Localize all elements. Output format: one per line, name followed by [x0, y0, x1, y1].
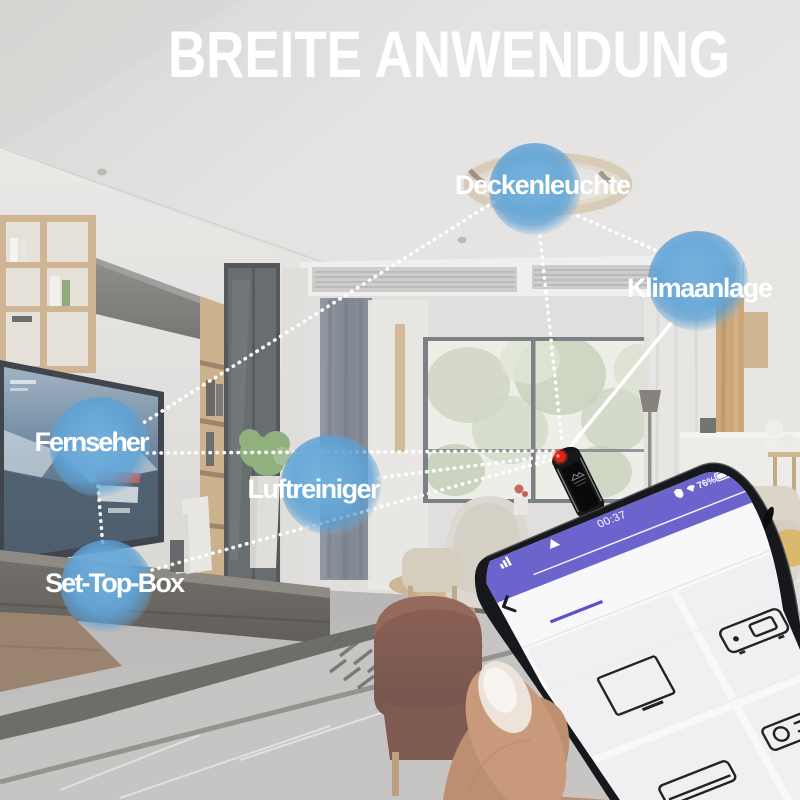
svg-text:Set-Top-Box: Set-Top-Box — [45, 568, 185, 598]
svg-text:Deckenleuchte: Deckenleuchte — [455, 170, 631, 200]
svg-text:BREITE ANWENDUNG: BREITE ANWENDUNG — [168, 17, 730, 91]
svg-text:Klimaanlage: Klimaanlage — [627, 273, 773, 303]
svg-text:Luftreiniger: Luftreiniger — [248, 474, 381, 504]
svg-text:Fernseher: Fernseher — [35, 427, 150, 457]
